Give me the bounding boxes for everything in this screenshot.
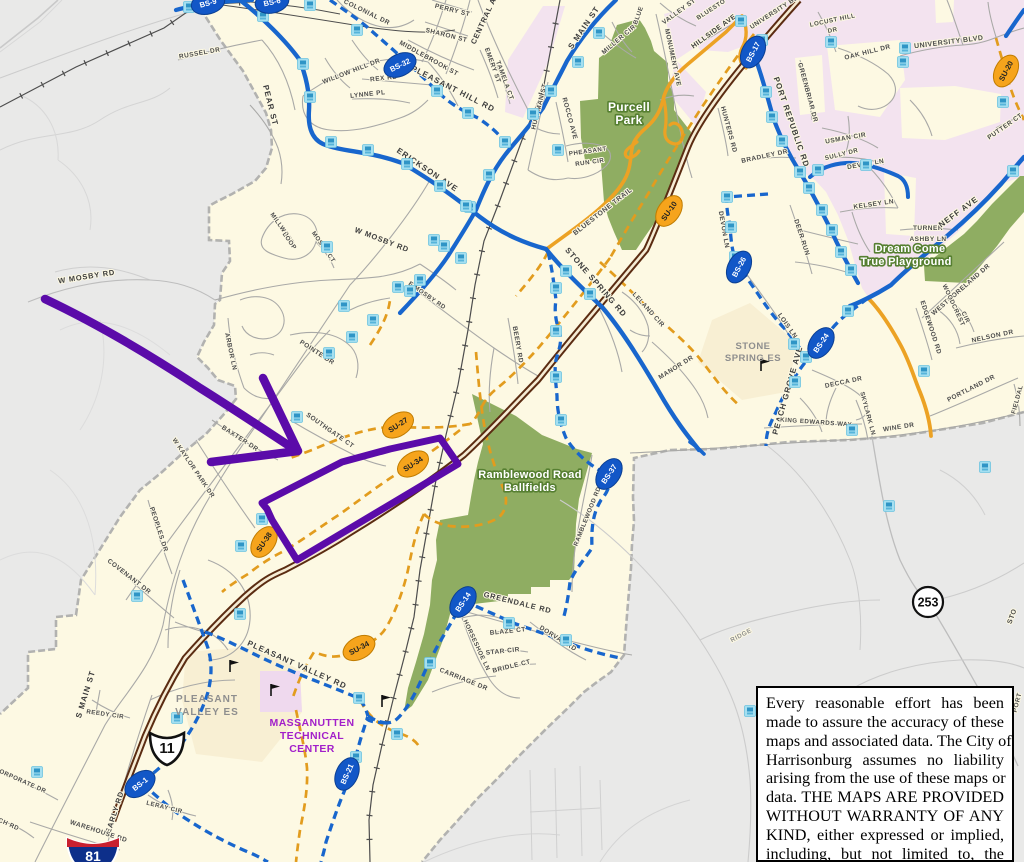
svg-text:Ballfields: Ballfields <box>504 482 556 494</box>
svg-text:81: 81 <box>85 848 101 862</box>
svg-text:Dream Come: Dream Come <box>875 243 946 255</box>
svg-text:STONE: STONE <box>735 341 770 352</box>
svg-text:SPRING ES: SPRING ES <box>725 353 781 364</box>
svg-text:TECHNICAL: TECHNICAL <box>280 730 344 742</box>
svg-text:VALLEY ES: VALLEY ES <box>175 707 239 718</box>
svg-text:TURNER: TURNER <box>913 225 943 232</box>
svg-text:MASSANUTTEN: MASSANUTTEN <box>270 717 355 729</box>
svg-text:Park: Park <box>615 113 642 127</box>
svg-text:True Playground: True Playground <box>860 256 951 268</box>
svg-text:11: 11 <box>159 741 174 757</box>
svg-text:ASHBY LN: ASHBY LN <box>909 236 946 243</box>
svg-text:Ramblewood Road: Ramblewood Road <box>478 469 582 481</box>
svg-text:Purcell: Purcell <box>608 100 650 114</box>
svg-text:253: 253 <box>918 596 939 610</box>
svg-text:CENTER: CENTER <box>289 743 335 755</box>
svg-text:PLEASANT: PLEASANT <box>176 694 238 705</box>
